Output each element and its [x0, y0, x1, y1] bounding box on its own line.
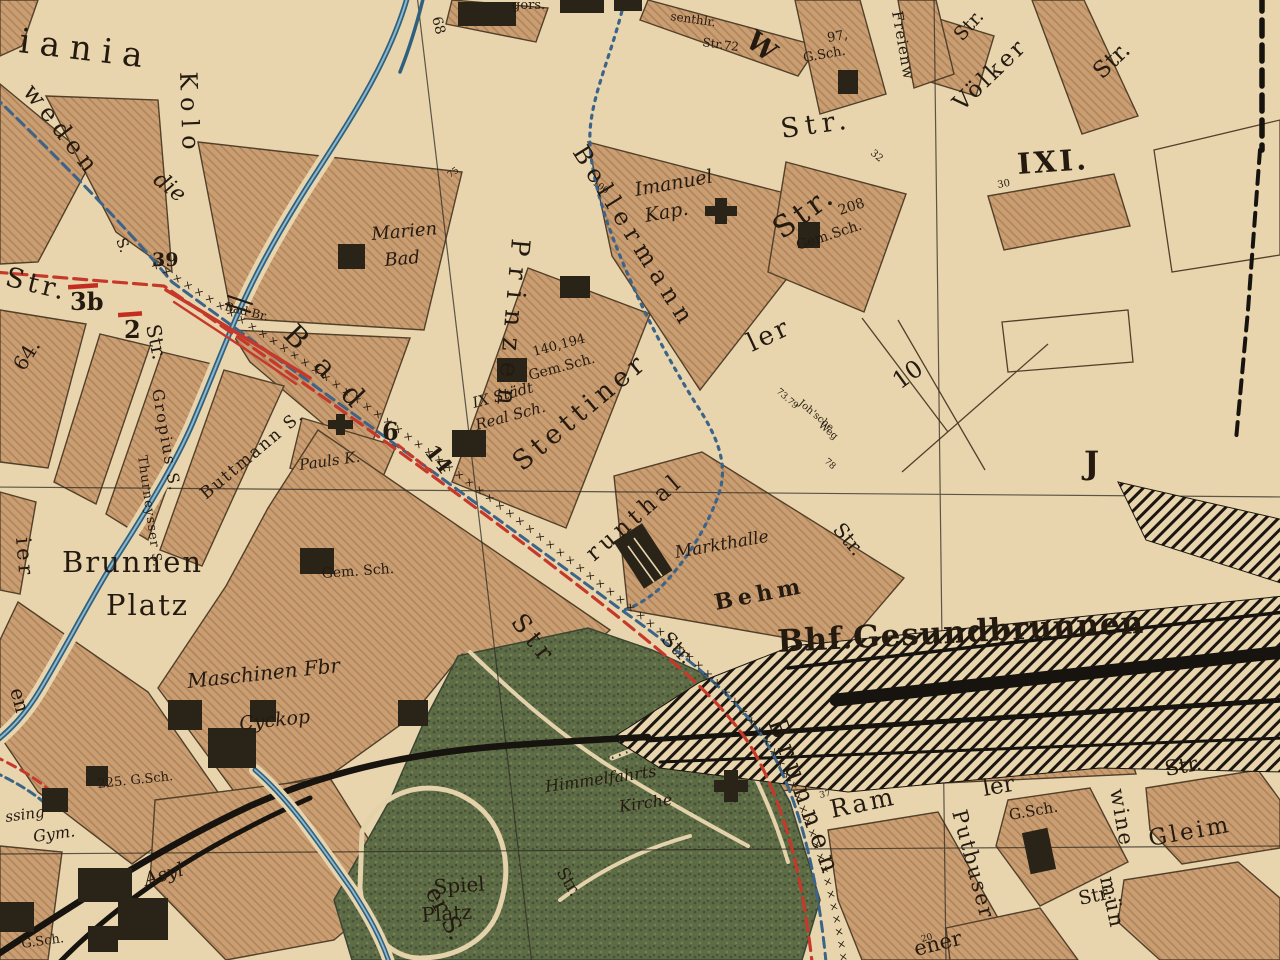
place-label-spielplatz-1: Spiel — [433, 871, 486, 899]
building-footprint — [458, 2, 516, 26]
tram-route-number-39: 39 — [152, 249, 178, 271]
place-label-brunnen-platz-1: Brunnen — [62, 545, 203, 579]
asyl-building — [118, 898, 168, 940]
place-label-marien-bad: Bad — [383, 247, 421, 271]
place-label-spielplatz-2: Platz — [421, 900, 473, 927]
tram-route-number-6: 6 — [382, 417, 399, 446]
historic-city-map[interactable]: × × × × × × × × × × × × × × × × × × × × … — [0, 0, 1280, 960]
marien-bad-building — [338, 244, 365, 269]
factory-building — [398, 700, 428, 726]
real-schule-building — [452, 430, 486, 457]
school-97-building — [838, 70, 858, 94]
street-label-left-edge-ier: ier — [11, 536, 38, 579]
school-building — [0, 902, 34, 932]
grid-letter-j: J — [1081, 444, 1099, 482]
house-number-30: 30 — [997, 178, 1011, 191]
street-label-gors: gors. — [512, 0, 545, 13]
place-label-brunnen-platz-2: Platz — [106, 588, 189, 622]
building-footprint — [560, 0, 604, 13]
asyl-building — [78, 868, 132, 902]
gymnasium-building — [42, 788, 68, 812]
street-label-ramlerstr-ler: ler — [981, 771, 1017, 802]
asyl-building — [88, 926, 118, 952]
tram-route-number-3b: 3b — [70, 287, 103, 316]
district-numeral-ixi: IXI. — [1016, 142, 1090, 181]
street-label-koloniestr: Kolo — [174, 71, 205, 158]
pump-station-building — [560, 276, 590, 298]
building-footprint — [614, 0, 642, 11]
tram-route-number-2: 2 — [124, 315, 141, 344]
map-viewport[interactable]: × × × × × × × × × × × × × × × × × × × × … — [0, 0, 1280, 960]
factory-building — [168, 700, 202, 730]
